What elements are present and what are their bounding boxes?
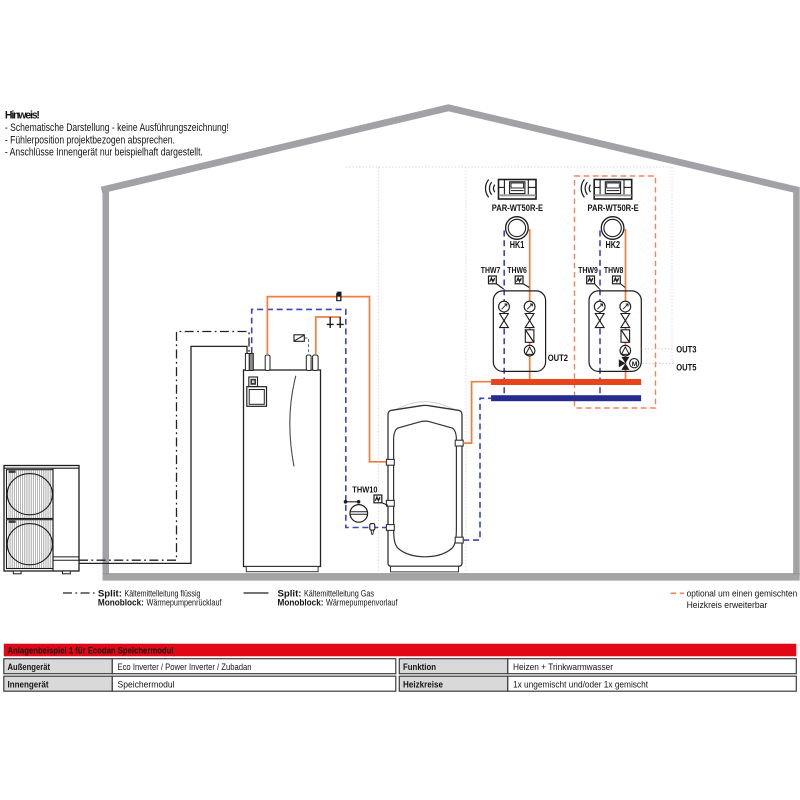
svg-text:Wärmepumpenvorlauf: Wärmepumpenvorlauf — [326, 597, 398, 607]
svg-text:- Fühlerposition projektbezoge: - Fühlerposition projektbezogen absprech… — [5, 134, 175, 146]
svg-text:Heizkreis erweiterbar: Heizkreis erweiterbar — [687, 600, 768, 610]
svg-text:HK1: HK1 — [510, 240, 525, 251]
svg-text:optional um einen gemischten: optional um einen gemischten — [687, 589, 798, 599]
svg-text:THW9: THW9 — [578, 265, 598, 275]
svg-text:THW10: THW10 — [352, 485, 377, 495]
svg-text:THW7: THW7 — [481, 265, 501, 275]
svg-text:Speichermodul: Speichermodul — [118, 679, 175, 689]
svg-text:OUT5: OUT5 — [676, 362, 696, 373]
svg-text:Funktion: Funktion — [403, 662, 436, 672]
svg-text:M: M — [632, 361, 638, 368]
svg-text:Innengerät: Innengerät — [8, 679, 49, 689]
svg-text:OUT2: OUT2 — [548, 352, 568, 363]
svg-text:OUT3: OUT3 — [676, 343, 696, 354]
svg-text:- Anschlüsse Innengerät nur be: - Anschlüsse Innengerät nur beispielhaft… — [5, 147, 203, 159]
svg-text:Eco Inverter / Power Inverter: Eco Inverter / Power Inverter / Zubadan — [118, 662, 252, 672]
svg-text:THW6: THW6 — [507, 265, 527, 275]
svg-text:HK2: HK2 — [606, 240, 621, 251]
svg-text:Monoblock:: Monoblock: — [278, 597, 324, 607]
svg-text:1x ungemischt und/oder 1x gemi: 1x ungemischt und/oder 1x gemischt — [513, 679, 648, 689]
svg-text:PAR-WT50R-E: PAR-WT50R-E — [588, 202, 639, 213]
svg-text:- Schematische Darstellung - k: - Schematische Darstellung - keine Ausfü… — [5, 122, 229, 134]
svg-text:Außengerät: Außengerät — [8, 662, 51, 672]
svg-text:Monoblock:: Monoblock: — [98, 597, 144, 607]
svg-text:Anlagenbeispiel 1 für Ecodan S: Anlagenbeispiel 1 für Ecodan Speichermod… — [8, 645, 174, 655]
svg-text:THW8: THW8 — [604, 265, 624, 275]
svg-text:PAR-WT50R-E: PAR-WT50R-E — [492, 202, 543, 213]
svg-text:Wärmepumpenrücklauf: Wärmepumpenrücklauf — [147, 597, 222, 607]
svg-text:Heizkreise: Heizkreise — [403, 679, 443, 689]
svg-text:Heizen + Trinkwarmwasser: Heizen + Trinkwarmwasser — [513, 662, 613, 672]
svg-text:Hinweis!: Hinweis! — [5, 110, 40, 122]
